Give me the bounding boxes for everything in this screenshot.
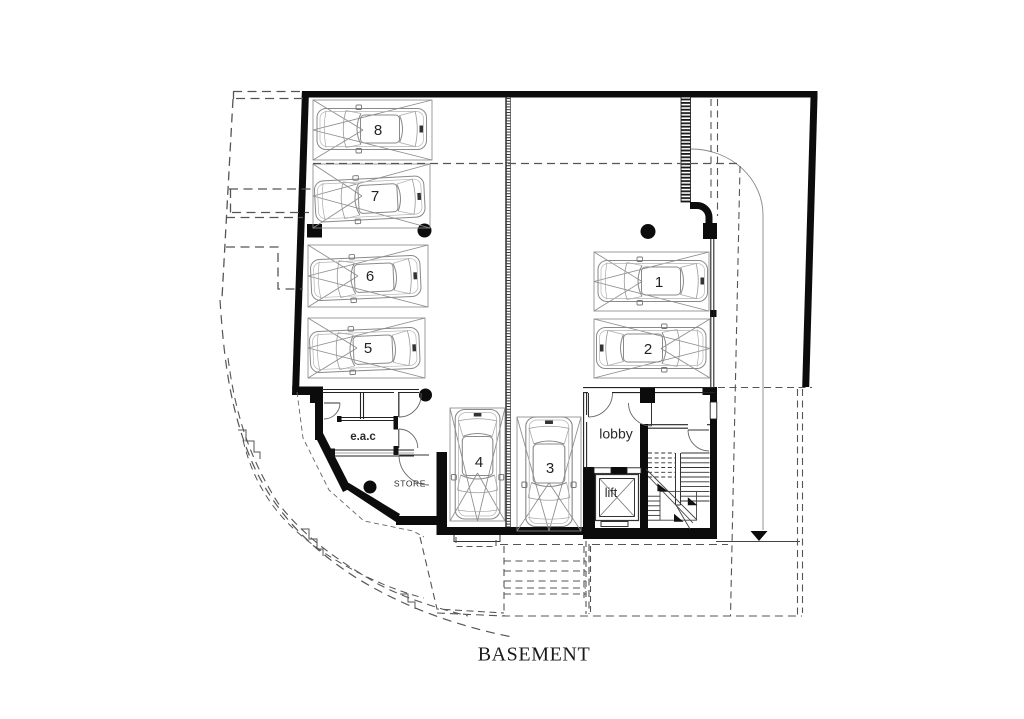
svg-text:STORE: STORE	[394, 479, 426, 489]
svg-text:6: 6	[366, 268, 374, 285]
svg-text:5: 5	[364, 340, 372, 357]
svg-text:4: 4	[475, 454, 483, 471]
svg-text:lobby: lobby	[599, 426, 632, 442]
svg-text:lift: lift	[605, 486, 618, 500]
svg-text:3: 3	[546, 460, 554, 477]
svg-text:2: 2	[644, 341, 652, 358]
svg-text:1: 1	[655, 274, 663, 291]
svg-text:7: 7	[371, 188, 379, 205]
svg-text:e.a.c: e.a.c	[350, 431, 376, 443]
svg-text:BASEMENT: BASEMENT	[478, 644, 591, 666]
svg-text:8: 8	[374, 122, 382, 139]
